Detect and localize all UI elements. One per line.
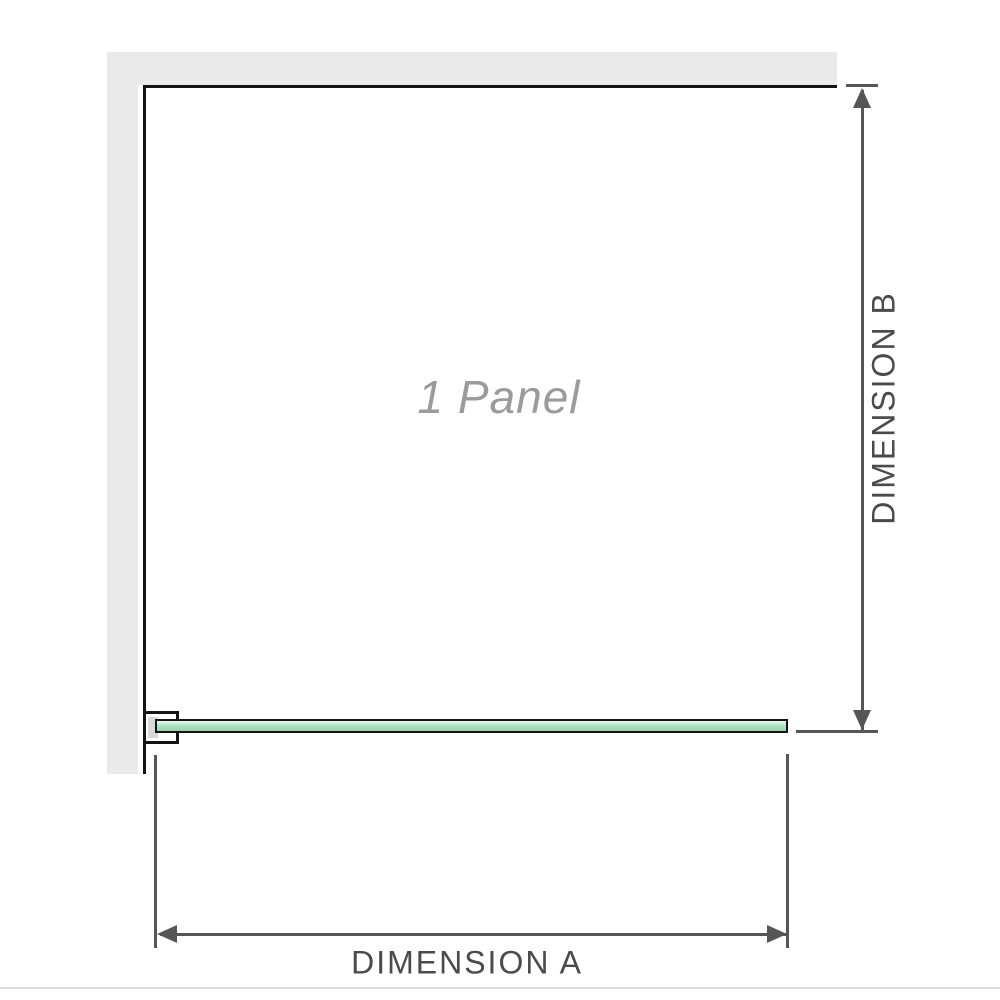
dimension-b-arrowhead-bottom <box>853 710 871 730</box>
dimension-b-tick-bottom <box>796 730 878 733</box>
dimension-b-line <box>861 90 864 730</box>
page-edge-line <box>0 987 1000 989</box>
glass-panel <box>155 719 788 733</box>
dimension-b-label: DIMENSION B <box>866 291 903 525</box>
enclosure-outline-top <box>143 85 837 88</box>
dimension-a-arrowhead-right <box>767 925 787 943</box>
dimension-b-tick-top <box>846 84 878 87</box>
dimension-a-extension-right <box>786 754 789 948</box>
wall-top <box>107 52 837 85</box>
dimension-a-extension-left <box>154 755 157 948</box>
dimension-b-arrowhead-top <box>853 88 871 108</box>
dimension-a-label: DIMENSION A <box>351 945 583 982</box>
dimension-a-line <box>160 933 787 936</box>
wall-left <box>107 52 138 774</box>
diagram-canvas: 1 Panel DIMENSION B DIMENSION A <box>0 0 1000 1000</box>
panel-count-label: 1 Panel <box>417 370 580 424</box>
enclosure-outline-left <box>143 85 146 774</box>
dimension-a-arrowhead-left <box>157 925 177 943</box>
